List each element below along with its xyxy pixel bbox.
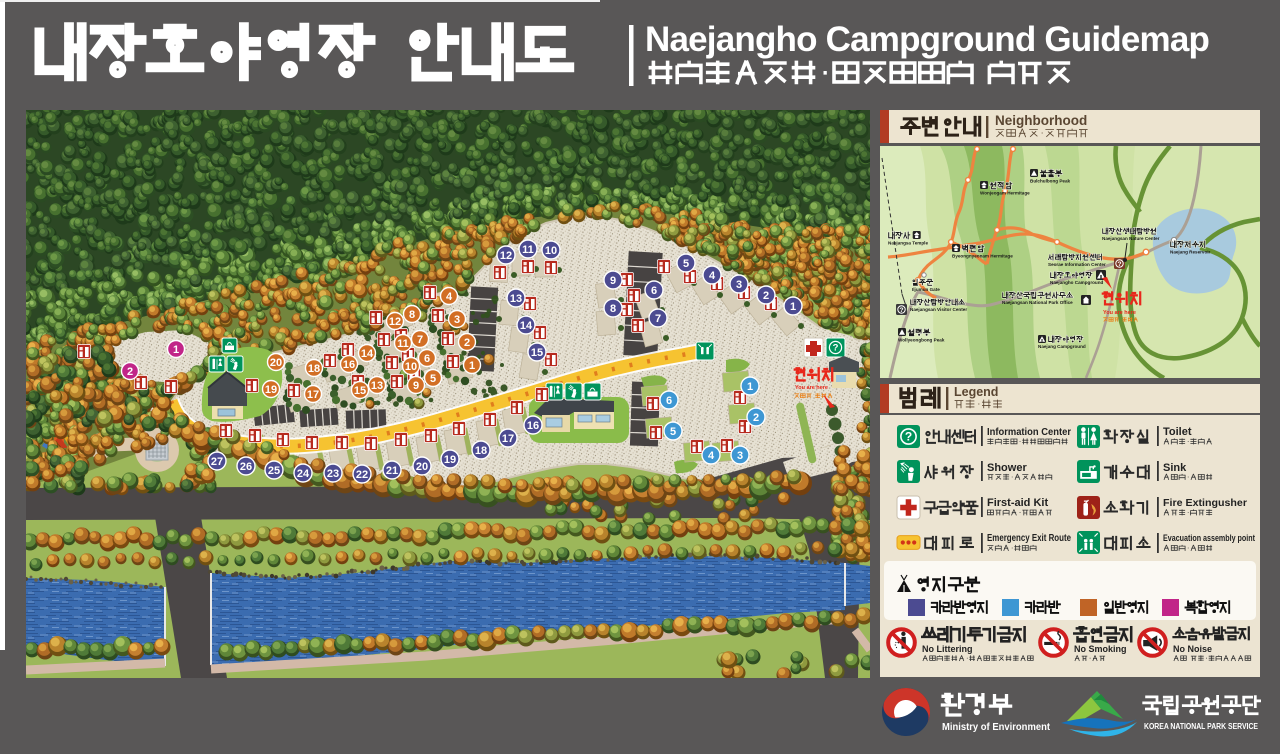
svg-text:?: ?: [1117, 261, 1121, 268]
svg-text:18: 18: [475, 445, 487, 457]
svg-text:3: 3: [737, 450, 743, 462]
svg-text:Naejangho Campground: Naejangho Campground: [1050, 280, 1104, 285]
svg-text:1: 1: [747, 381, 753, 393]
svg-text:5: 5: [430, 373, 436, 385]
svg-text:3: 3: [454, 314, 460, 326]
svg-text:Evacuation assembly point: Evacuation assembly point: [1163, 533, 1255, 543]
svg-text:6: 6: [424, 353, 430, 365]
svg-text:7: 7: [417, 334, 423, 346]
svg-text:6: 6: [651, 285, 657, 297]
svg-text:Naejang Campground: Naejang Campground: [1038, 344, 1086, 349]
svg-text:2: 2: [464, 337, 470, 349]
svg-text:1: 1: [790, 301, 796, 313]
svg-text:27: 27: [211, 456, 223, 468]
svg-text:Legend: Legend: [954, 385, 998, 399]
svg-text:22: 22: [356, 469, 368, 481]
svg-text:?: ?: [905, 430, 912, 444]
svg-text:?: ?: [899, 307, 903, 314]
svg-text:Emergency Exit Route: Emergency Exit Route: [987, 533, 1071, 544]
svg-text:2: 2: [127, 366, 133, 378]
svg-text:14: 14: [361, 348, 374, 360]
svg-text:Information Center: Information Center: [987, 427, 1071, 438]
svg-text:10: 10: [405, 361, 417, 373]
svg-text:Naejangsan National Park Offic: Naejangsan National Park Office: [1002, 300, 1073, 305]
svg-text:No Littering: No Littering: [922, 644, 973, 654]
svg-text:20: 20: [416, 461, 428, 473]
svg-text:5: 5: [670, 426, 676, 438]
svg-text:Byeongnyeonam Hermitage: Byeongnyeonam Hermitage: [952, 254, 1013, 259]
svg-text:Shower: Shower: [987, 462, 1027, 474]
svg-text:10: 10: [545, 245, 557, 257]
svg-text:16: 16: [527, 420, 539, 432]
svg-text:19: 19: [265, 384, 277, 396]
svg-text:24: 24: [297, 468, 310, 480]
svg-text:17: 17: [502, 433, 514, 445]
svg-text:?: ?: [833, 343, 839, 354]
svg-text:15: 15: [531, 347, 543, 359]
svg-text:2: 2: [763, 290, 769, 302]
svg-text:1: 1: [469, 360, 475, 372]
svg-text:4: 4: [446, 291, 453, 303]
svg-text:7: 7: [655, 313, 661, 325]
svg-text:14: 14: [520, 320, 533, 332]
svg-text:13: 13: [510, 293, 522, 305]
svg-text:20: 20: [270, 357, 282, 369]
svg-text:You are here: You are here: [1103, 310, 1136, 316]
svg-text:12: 12: [500, 250, 512, 262]
svg-text:Ministry of Environment: Ministry of Environment: [942, 721, 1050, 733]
svg-text:17: 17: [307, 389, 319, 401]
svg-text:No Smoking: No Smoking: [1074, 644, 1127, 654]
svg-text:5: 5: [683, 258, 689, 270]
svg-text:Naejangsan Visitor Center: Naejangsan Visitor Center: [910, 307, 967, 312]
svg-text:11: 11: [397, 338, 409, 350]
svg-text:Bulchulbong Peak: Bulchulbong Peak: [1030, 179, 1071, 184]
svg-text:Seorae Information Center: Seorae Information Center: [1048, 262, 1106, 267]
svg-text:15: 15: [354, 385, 366, 397]
svg-text:12: 12: [389, 316, 401, 328]
svg-text:19: 19: [444, 454, 456, 466]
svg-text:1: 1: [173, 344, 179, 356]
svg-text:23: 23: [327, 468, 339, 480]
svg-text:6: 6: [666, 395, 672, 407]
svg-text:Iljumun Gate: Iljumun Gate: [912, 287, 940, 292]
svg-text:8: 8: [610, 303, 616, 315]
svg-text:4: 4: [709, 270, 716, 282]
svg-text:4: 4: [708, 450, 715, 462]
svg-text:11: 11: [522, 244, 534, 256]
svg-text:Naejangsa Temple: Naejangsa Temple: [888, 241, 928, 246]
svg-text:KOREA NATIONAL PARK SERVICE: KOREA NATIONAL PARK SERVICE: [1144, 722, 1259, 731]
svg-text:21: 21: [386, 465, 398, 477]
svg-text:Naejangsan Nature Center: Naejangsan Nature Center: [1102, 236, 1160, 241]
svg-text:First-aid Kit: First-aid Kit: [987, 497, 1048, 509]
svg-text:2: 2: [753, 412, 759, 424]
svg-text:Wollyeongbong Peak: Wollyeongbong Peak: [898, 338, 945, 343]
svg-text:Naejang Reservoir: Naejang Reservoir: [1170, 249, 1211, 254]
svg-text:Toilet: Toilet: [1163, 426, 1192, 438]
svg-text:26: 26: [240, 461, 252, 473]
svg-text:You are here: You are here: [795, 385, 828, 391]
svg-text:25: 25: [268, 465, 280, 477]
svg-text:Wonjeogam Hermitage: Wonjeogam Hermitage: [980, 191, 1030, 196]
svg-text:18: 18: [308, 363, 320, 375]
svg-text:8: 8: [409, 309, 415, 321]
svg-text:No Noise: No Noise: [1173, 644, 1212, 654]
svg-text:13: 13: [371, 380, 383, 392]
svg-text:9: 9: [413, 380, 419, 392]
svg-text:Neighborhood: Neighborhood: [995, 113, 1087, 128]
svg-text:3: 3: [736, 279, 742, 291]
svg-text:9: 9: [610, 275, 616, 287]
svg-text:Fire Extingusher: Fire Extingusher: [1163, 498, 1247, 509]
svg-text:Sink: Sink: [1163, 462, 1187, 474]
svg-text:16: 16: [343, 359, 355, 371]
